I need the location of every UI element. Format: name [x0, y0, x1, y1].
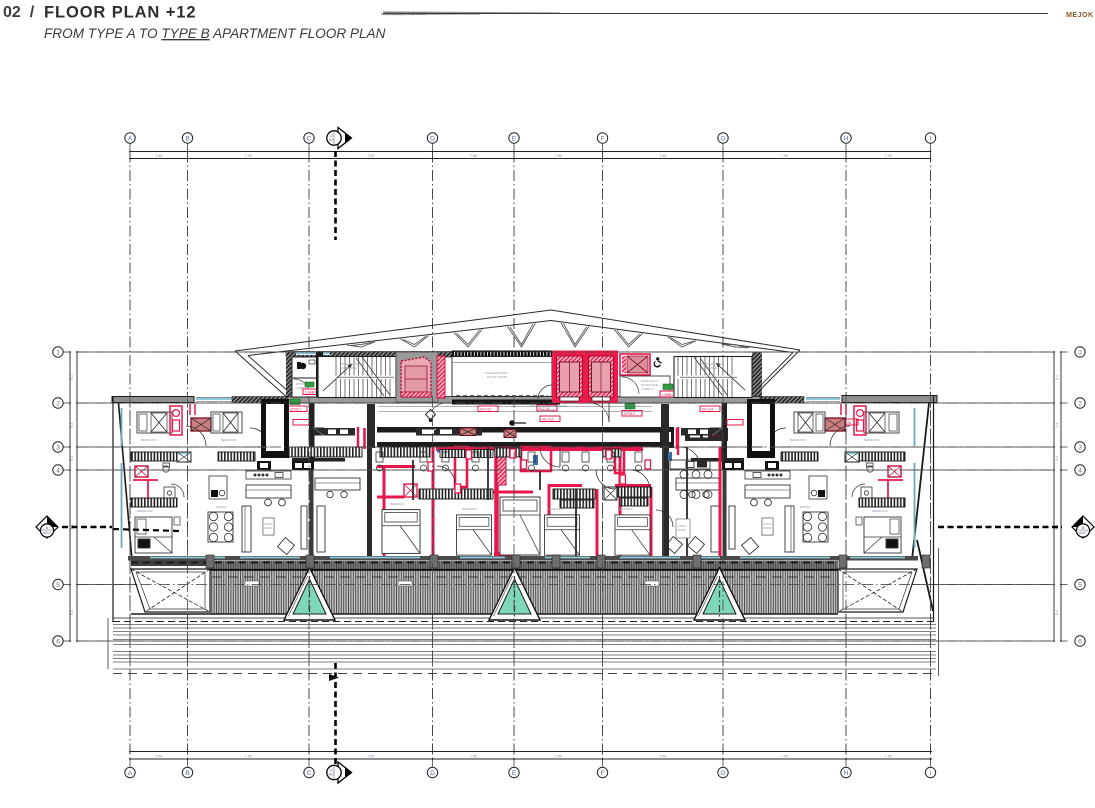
- svg-text:7.50: 7.50: [155, 755, 162, 759]
- svg-text:G: G: [720, 135, 725, 142]
- svg-text:DP06 1: DP06 1: [290, 408, 301, 412]
- svg-text:7.50: 7.50: [659, 154, 666, 158]
- svg-text:MEJOK: MEJOK: [1066, 10, 1094, 19]
- svg-text:1: 1: [56, 349, 60, 356]
- svg-text:BEDROOM: BEDROOM: [864, 438, 880, 442]
- svg-text:6: 6: [1078, 638, 1082, 645]
- svg-text:7.50: 7.50: [885, 755, 892, 759]
- svg-text:5.4: 5.4: [70, 423, 74, 428]
- svg-text:B: B: [185, 770, 189, 777]
- svg-text:E: E: [512, 135, 517, 142]
- svg-text:BEDROOM: BEDROOM: [790, 438, 806, 442]
- svg-text:BEDROOM: BEDROOM: [462, 507, 477, 511]
- svg-text:C: C: [307, 135, 312, 142]
- svg-text:02 /: 02 /: [3, 4, 35, 21]
- svg-text:7.50: 7.50: [367, 154, 374, 158]
- svg-text:3: 3: [1078, 444, 1082, 451]
- svg-text:LIVING: LIVING: [264, 522, 273, 526]
- svg-text:E: E: [512, 770, 517, 777]
- svg-text:6: 6: [56, 638, 60, 645]
- svg-text:FROM TYPE A TO TYPE B APARTMEN: FROM TYPE A TO TYPE B APARTMENT FLOOR PL…: [44, 26, 386, 41]
- svg-text:F: F: [601, 770, 605, 777]
- svg-text:5.4: 5.4: [1055, 423, 1059, 428]
- svg-text:KK-C14: KK-C14: [702, 408, 713, 412]
- svg-text:7.50: 7.50: [885, 154, 892, 158]
- svg-text:2: 2: [1078, 400, 1082, 407]
- svg-text:DINING: DINING: [216, 505, 227, 509]
- svg-text:KK-C12: KK-C12: [542, 418, 554, 422]
- svg-text:FLOOR PLAN +12: FLOOR PLAN +12: [44, 4, 196, 22]
- svg-text:BEDROOM: BEDROOM: [872, 509, 888, 513]
- svg-text:5.4: 5.4: [1055, 610, 1059, 615]
- svg-text:KK-C10: KK-C10: [480, 408, 491, 412]
- svg-text:4: 4: [1078, 467, 1082, 474]
- svg-text:7.50: 7.50: [555, 755, 562, 759]
- svg-text:4: 4: [56, 467, 60, 474]
- svg-text:I: I: [930, 135, 932, 142]
- svg-text:2: 2: [56, 400, 60, 407]
- svg-text:5.4: 5.4: [1055, 375, 1059, 380]
- svg-text:5.4: 5.4: [70, 610, 74, 615]
- svg-text:G: G: [720, 770, 725, 777]
- svg-text:5.4: 5.4: [70, 375, 74, 380]
- svg-text:ROOM: ROOM: [763, 526, 771, 530]
- svg-text:STAIRCASE 1: STAIRCASE 1: [340, 366, 360, 370]
- svg-text:BEDROOM: BEDROOM: [221, 438, 237, 442]
- svg-text:D: D: [430, 770, 435, 777]
- svg-text:A: A: [128, 135, 133, 142]
- svg-text:7.50: 7.50: [555, 154, 562, 158]
- svg-text:BEDROOM: BEDROOM: [141, 438, 157, 442]
- svg-text:7.50: 7.50: [781, 755, 788, 759]
- svg-text:ROOM: ROOM: [678, 528, 686, 532]
- svg-text:1: 1: [1078, 349, 1082, 356]
- svg-text:DINING: DINING: [800, 505, 811, 509]
- svg-text:A207: A207: [43, 531, 51, 535]
- svg-text:F: F: [601, 135, 605, 142]
- svg-text:C: C: [307, 770, 312, 777]
- svg-text:7.50: 7.50: [781, 154, 788, 158]
- svg-text:5.4: 5.4: [70, 456, 74, 461]
- svg-text:LOBBY 2: LOBBY 2: [641, 387, 654, 391]
- svg-text:LAK-wsnem-mamnam: LAK-wsnem-mamnam: [381, 11, 426, 16]
- svg-text:7.50: 7.50: [470, 154, 477, 158]
- svg-text:BEDROOM: BEDROOM: [390, 502, 405, 506]
- svg-text:PLANT ROOM: PLANT ROOM: [487, 375, 507, 379]
- svg-text:7.50: 7.50: [155, 154, 162, 158]
- svg-text:5: 5: [56, 582, 60, 589]
- svg-text:7.50: 7.50: [659, 755, 666, 759]
- svg-text:BEDROOM: BEDROOM: [618, 507, 633, 511]
- svg-text:A: A: [128, 770, 133, 777]
- svg-text:BEDROOM: BEDROOM: [548, 507, 563, 511]
- svg-text:7.50: 7.50: [367, 755, 374, 759]
- svg-text:H: H: [844, 770, 849, 777]
- svg-text:LIVING: LIVING: [763, 522, 772, 526]
- svg-text:LIVING: LIVING: [678, 524, 687, 528]
- svg-text:ROOM: ROOM: [264, 526, 272, 530]
- svg-text:5.4: 5.4: [1055, 456, 1059, 461]
- svg-text:BEDROOM: BEDROOM: [137, 509, 153, 513]
- svg-text:STAIRCASE 2: STAIRCASE 2: [700, 366, 720, 370]
- svg-text:7.50: 7.50: [245, 755, 252, 759]
- svg-text:H: H: [844, 135, 849, 142]
- svg-text:5: 5: [1078, 582, 1082, 589]
- svg-text:A207: A207: [1079, 531, 1087, 535]
- svg-text:D: D: [430, 135, 435, 142]
- svg-text:B: B: [185, 135, 189, 142]
- svg-text:A2: A2: [329, 138, 333, 142]
- svg-text:7.50: 7.50: [245, 154, 252, 158]
- svg-text:3: 3: [56, 444, 60, 451]
- svg-text:A2: A2: [329, 773, 333, 777]
- svg-text:I: I: [930, 770, 932, 777]
- svg-text:DP06 2: DP06 2: [624, 412, 635, 416]
- svg-text:7.50: 7.50: [470, 755, 477, 759]
